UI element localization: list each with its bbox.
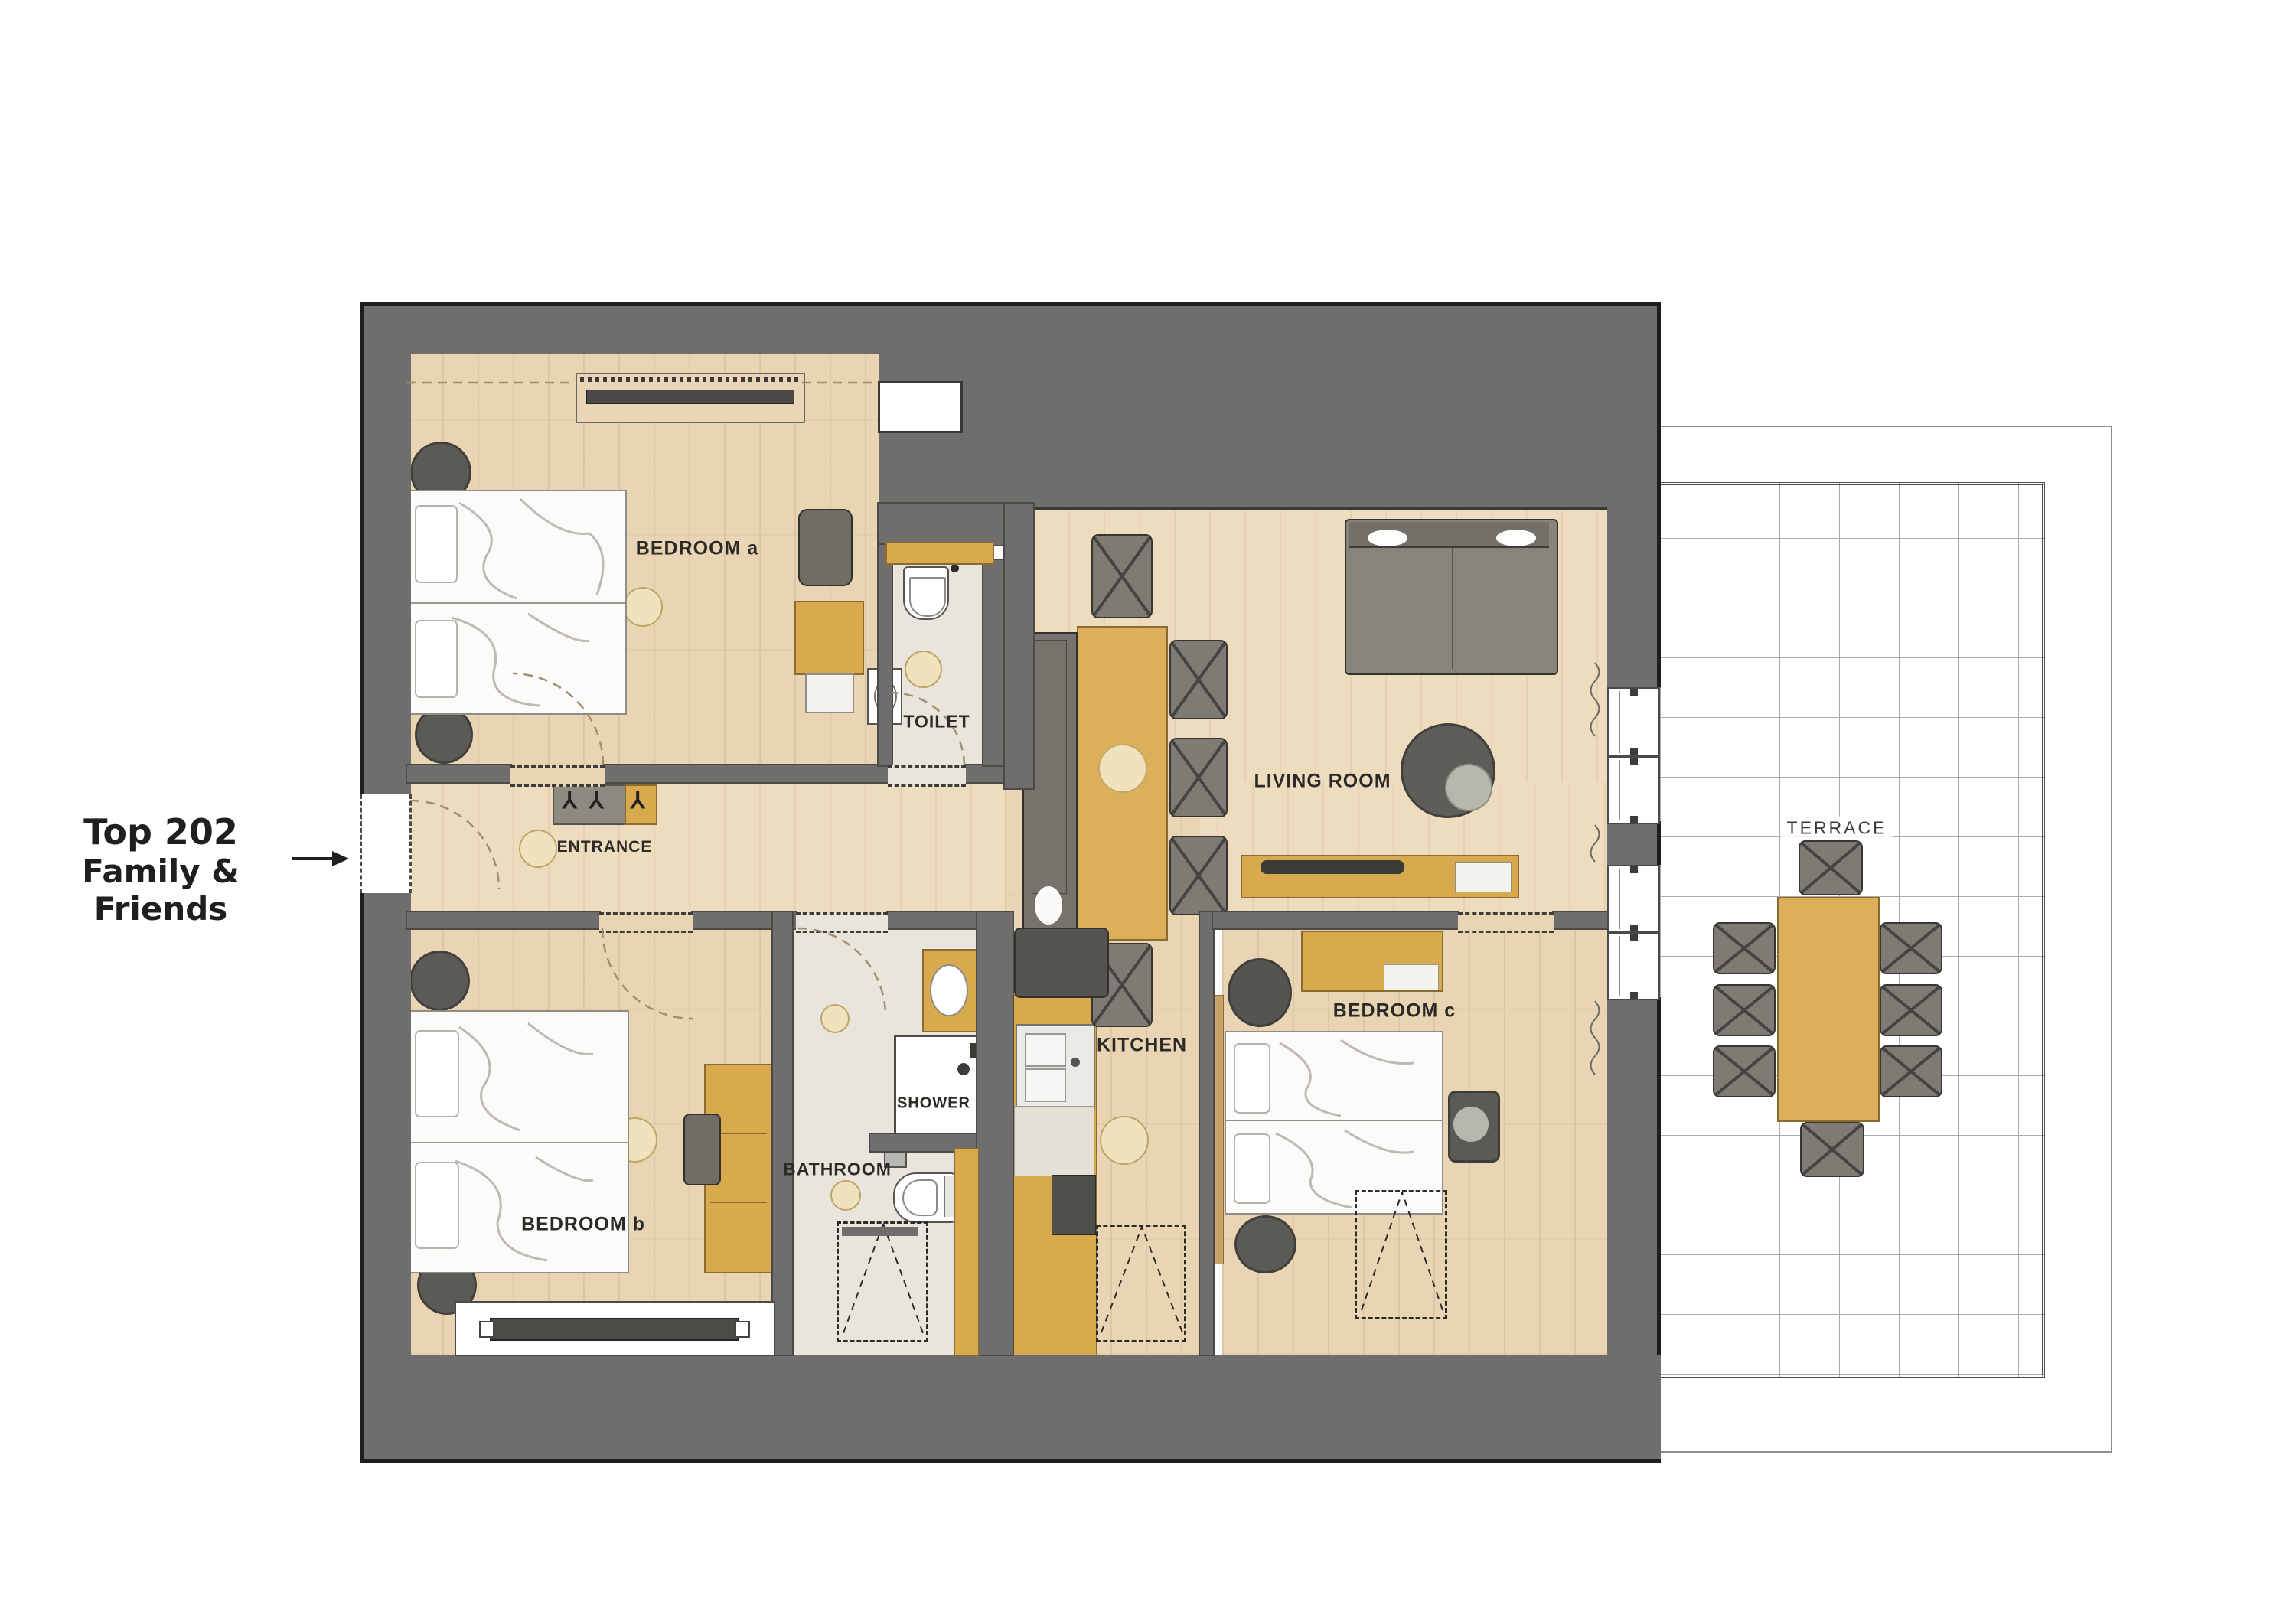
wall-niche bbox=[878, 381, 963, 433]
kitchen-sink bbox=[1016, 1024, 1095, 1109]
wall bbox=[360, 302, 882, 354]
round-rug bbox=[1234, 1215, 1296, 1273]
bedroom-b-door bbox=[599, 912, 693, 933]
dining-chair bbox=[1091, 534, 1153, 618]
side-table bbox=[1445, 764, 1492, 811]
wardrobe-a bbox=[576, 373, 805, 423]
flush-button bbox=[951, 564, 959, 572]
toilet-door bbox=[888, 765, 966, 787]
wall bbox=[605, 765, 888, 782]
room-label-bathroom: BATHROOM bbox=[783, 1159, 892, 1180]
bathroom-wc bbox=[893, 1172, 956, 1223]
wall bbox=[879, 545, 892, 765]
coat-hook-icon: ⅄ bbox=[589, 790, 603, 813]
toilet-wc bbox=[903, 566, 949, 620]
toilet-counter bbox=[885, 542, 994, 565]
terrace-table bbox=[1777, 897, 1880, 1122]
bedroom-a-door bbox=[510, 765, 605, 787]
coat-hook-icon: ⅄ bbox=[631, 790, 644, 813]
wall bbox=[1213, 912, 1458, 928]
wall bbox=[407, 912, 599, 928]
round-rug-beige bbox=[905, 651, 942, 688]
terrace-door-window bbox=[1607, 687, 1660, 757]
room-label-shower: SHOWER bbox=[897, 1095, 970, 1113]
terrace-door-window bbox=[1607, 756, 1660, 824]
double-bed-a bbox=[404, 490, 627, 715]
room-label-bedroom-b: BEDROOM b bbox=[521, 1214, 645, 1236]
room-label-entrance: ENTRANCE bbox=[557, 838, 653, 856]
desk-chair-a bbox=[805, 673, 854, 713]
coat-hook-icon: ⅄ bbox=[563, 790, 576, 813]
unit-annotation: Top 202 Family & Friends bbox=[23, 811, 298, 928]
dining-chair bbox=[1169, 738, 1228, 817]
unit-subtitle: Family & Friends bbox=[23, 853, 298, 928]
kitchen-shaft bbox=[1096, 1225, 1186, 1342]
bathroom-door bbox=[796, 912, 888, 933]
armchair-a bbox=[798, 509, 853, 586]
wall bbox=[360, 350, 411, 794]
bedroom-b-window bbox=[455, 1301, 775, 1356]
tv-sideboard bbox=[1241, 855, 1519, 898]
terrace-door-window bbox=[1607, 865, 1660, 933]
wall bbox=[1607, 997, 1661, 1355]
desk-chair-c bbox=[1228, 958, 1292, 1027]
kitchen-cabinet bbox=[1014, 1106, 1094, 1176]
wall bbox=[983, 560, 1005, 765]
shower-enclosure bbox=[894, 1035, 978, 1139]
terrace-chair bbox=[1713, 1045, 1776, 1097]
stove bbox=[1052, 1175, 1096, 1235]
bath-partition bbox=[954, 1148, 979, 1356]
terrace-chair bbox=[1880, 1045, 1942, 1097]
wall bbox=[1607, 504, 1661, 687]
terrace-chair bbox=[1713, 922, 1776, 974]
shower-head-icon bbox=[957, 1063, 970, 1075]
wall bbox=[360, 893, 411, 1355]
terrace-door-window bbox=[1607, 932, 1660, 1000]
dining-chair bbox=[1169, 640, 1228, 719]
twin-bed-c1 bbox=[1225, 1031, 1443, 1123]
round-rug bbox=[409, 951, 470, 1011]
stool-b bbox=[683, 1114, 721, 1185]
terrace-chair bbox=[1800, 1122, 1864, 1177]
wall bbox=[407, 765, 510, 782]
terrace-chair bbox=[1713, 984, 1776, 1036]
dining-table bbox=[1077, 626, 1168, 941]
round-rug-beige bbox=[623, 587, 663, 627]
wall bbox=[1554, 912, 1607, 928]
terrace-chair bbox=[1880, 984, 1942, 1036]
bed-headboard bbox=[1215, 995, 1224, 1264]
wall bbox=[1607, 821, 1661, 865]
entrance-door-opening bbox=[360, 794, 412, 893]
sofa bbox=[1345, 519, 1558, 675]
wall bbox=[1005, 504, 1033, 788]
desk-c bbox=[1301, 931, 1443, 992]
round-rug-beige bbox=[830, 1180, 861, 1211]
fridge bbox=[1014, 928, 1109, 998]
room-label-terrace: TERRACE bbox=[1781, 817, 1893, 840]
desk-a bbox=[794, 601, 864, 675]
bedroom-c-door bbox=[1458, 912, 1554, 933]
bedroom-c-shaft bbox=[1355, 1190, 1447, 1319]
dining-chair bbox=[1169, 836, 1228, 915]
room-label-living: LIVING ROOM bbox=[1254, 771, 1391, 793]
wall bbox=[1200, 912, 1213, 1355]
wall bbox=[879, 504, 1005, 545]
terrace-chair bbox=[1880, 922, 1942, 974]
wall bbox=[773, 912, 792, 1355]
room-label-toilet: TOILET bbox=[903, 712, 970, 732]
unit-title: Top 202 bbox=[23, 811, 298, 853]
room-label-bedroom-c: BEDROOM c bbox=[1333, 1000, 1456, 1022]
room-label-bedroom-a: BEDROOM a bbox=[636, 538, 758, 560]
round-rug-beige bbox=[1100, 1116, 1149, 1165]
wall bbox=[977, 912, 1013, 1355]
floor-plan: TERRACE BEDROOM a TOILET bbox=[0, 0, 2296, 1624]
round-rug-beige bbox=[519, 830, 557, 868]
bath-vanity bbox=[922, 949, 981, 1032]
room-label-kitchen: KITCHEN bbox=[1097, 1035, 1187, 1057]
bathroom-shaft bbox=[837, 1221, 928, 1342]
bedside-rug bbox=[1448, 1091, 1500, 1163]
entrance-arrow-icon bbox=[289, 842, 351, 876]
wall bbox=[360, 1355, 1661, 1463]
wall bbox=[879, 302, 1661, 510]
round-rug-beige bbox=[820, 1004, 850, 1033]
terrace-chair bbox=[1799, 840, 1863, 895]
